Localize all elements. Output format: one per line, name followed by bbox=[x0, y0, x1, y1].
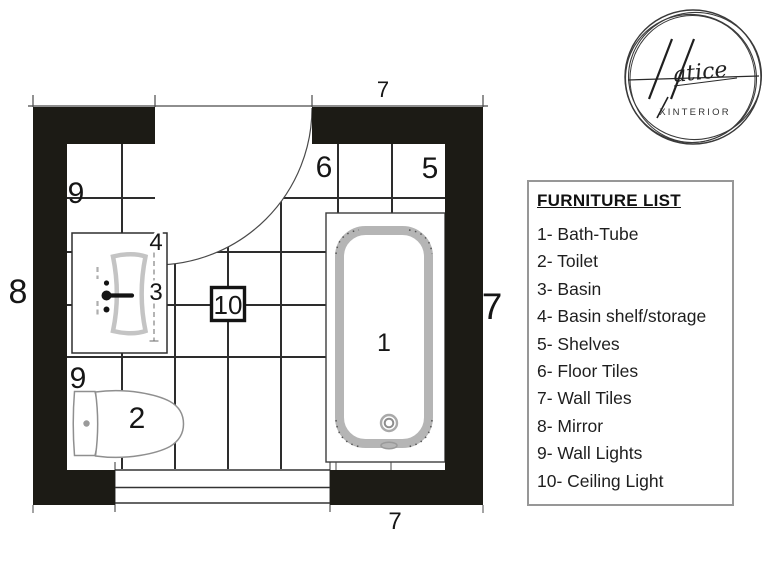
furniture-list-item: 6- Floor Tiles bbox=[537, 358, 728, 385]
hatice-interior-logo: atice XINTERIOR bbox=[618, 2, 768, 152]
wall-bottom-left bbox=[33, 470, 115, 505]
wall-right bbox=[445, 107, 483, 505]
label-basin-shelf: 4 bbox=[149, 229, 162, 256]
label-floor-tiles: 6 bbox=[316, 151, 333, 184]
furniture-list-item: 9- Wall Lights bbox=[537, 440, 728, 467]
wall-bottom-right bbox=[330, 470, 483, 505]
toilet-button-icon bbox=[83, 420, 89, 426]
window bbox=[111, 462, 333, 512]
logo-subtitle-text: XINTERIOR bbox=[659, 107, 731, 118]
label-shelves: 5 bbox=[422, 152, 439, 185]
label-wall-tiles-top: 7 bbox=[377, 77, 389, 102]
label-wall-light-upper: 9 bbox=[68, 177, 85, 210]
label-bath-tube: 1 bbox=[377, 329, 391, 357]
door-swing bbox=[155, 108, 312, 265]
bathroom-floor-plan-page: 7 7 7 8 9 9 6 5 4 3 10 1 2 FURNITURE LIS… bbox=[0, 0, 768, 576]
wall-left bbox=[33, 107, 67, 505]
label-toilet: 2 bbox=[129, 402, 146, 435]
furniture-list-panel: FURNITURE LIST 1- Bath-Tube 2- Toilet 3-… bbox=[527, 180, 734, 506]
furniture-list-item: 2- Toilet bbox=[537, 248, 728, 275]
bottom-corner-ticks bbox=[33, 505, 483, 513]
tub-platform-ticks bbox=[336, 462, 391, 470]
furniture-list-item: 5- Shelves bbox=[537, 331, 728, 358]
label-wall-tiles-bottom: 7 bbox=[388, 508, 401, 535]
furniture-list-item: 10- Ceiling Light bbox=[537, 468, 728, 495]
furniture-list-item: 3- Basin bbox=[537, 276, 728, 303]
furniture-list-item: 1- Bath-Tube bbox=[537, 221, 728, 248]
furniture-list-item: 8- Mirror bbox=[537, 413, 728, 440]
furniture-list-item: 4- Basin shelf/storage bbox=[537, 303, 728, 330]
label-wall-tiles-right: 7 bbox=[482, 286, 503, 327]
logo-script-text: atice bbox=[672, 57, 729, 88]
furniture-list-item: 7- Wall Tiles bbox=[537, 385, 728, 412]
label-ceiling-light: 10 bbox=[214, 290, 243, 320]
top-dimension-line bbox=[28, 95, 488, 107]
label-mirror: 8 bbox=[9, 273, 28, 311]
furniture-list-title: FURNITURE LIST bbox=[537, 191, 728, 211]
label-basin: 3 bbox=[149, 279, 162, 306]
label-wall-light-lower: 9 bbox=[70, 362, 87, 395]
